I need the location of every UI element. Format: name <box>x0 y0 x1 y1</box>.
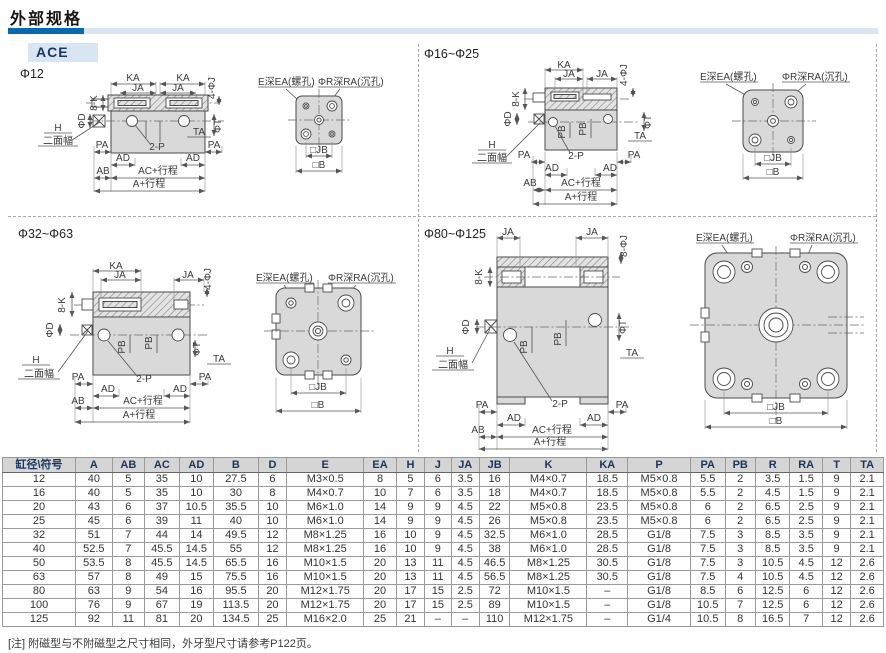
spec-cell: 4.5 <box>451 543 479 557</box>
spec-cell: 16 <box>364 529 396 543</box>
spec-cell: 30.5 <box>587 557 628 571</box>
spec-cell: 1.5 <box>790 487 822 501</box>
dim-label-ad: AD <box>116 153 130 164</box>
dim-label-ta: TA <box>626 348 638 359</box>
spec-cell: 32.5 <box>479 529 509 543</box>
column-header: K <box>510 458 587 473</box>
spec-cell: 7 <box>112 529 144 543</box>
title-accent-bar-dark <box>8 28 84 34</box>
dim-label-pb: PB <box>578 122 589 136</box>
spec-cell: 12 <box>822 599 850 613</box>
spec-cell: – <box>451 613 479 627</box>
dim-label-ad: AD <box>507 413 521 424</box>
spec-cell: 12.5 <box>755 599 790 613</box>
column-header: KA <box>587 458 628 473</box>
dim-label-a-stroke: A+行程 <box>123 408 156 421</box>
spec-cell: 16 <box>179 585 214 599</box>
label-counterbore: ΦR深RA(沉孔) <box>318 75 384 88</box>
dim-label-2p: 2-P <box>149 142 165 153</box>
dim-label-8k: 8-K <box>474 269 485 285</box>
spec-cell: 12 <box>822 613 850 627</box>
spec-cell: – <box>425 613 451 627</box>
spec-cell: 5 <box>112 487 144 501</box>
spec-cell: 23.5 <box>587 501 628 515</box>
row-bore-size: 12 <box>3 473 76 487</box>
dim-label-phit: ΦT <box>618 320 629 334</box>
spec-cell: 37 <box>145 501 180 515</box>
label-thread-hole: E深EA(螺孔) <box>696 232 753 244</box>
dim-label-ja: JA <box>586 227 598 238</box>
spec-cell: 2.5 <box>790 515 822 529</box>
row-bore-size: 100 <box>3 599 76 613</box>
spec-cell: 40 <box>76 487 113 501</box>
spec-cell: M5×0.8 <box>510 515 587 529</box>
spec-cell: 1.5 <box>790 473 822 487</box>
spec-cell: 38 <box>479 543 509 557</box>
dim-label-8k: 8-K <box>89 95 100 111</box>
spec-cell: 6 <box>258 473 286 487</box>
spec-cell: M10×1.5 <box>510 599 587 613</box>
spec-cell: 21 <box>396 613 424 627</box>
dim-label-pa: PA <box>476 400 489 411</box>
spec-cell: – <box>587 613 628 627</box>
title-accent-bar-light <box>84 28 878 34</box>
spec-cell: M5×0.8 <box>628 501 691 515</box>
label-counterbore: ΦR深RA(沉孔) <box>790 231 856 244</box>
spec-cell: 2 <box>725 487 755 501</box>
dim-label-pa: PA <box>208 140 221 151</box>
column-header: JB <box>479 458 509 473</box>
spec-cell: 23.5 <box>587 515 628 529</box>
spec-cell: M10×1.5 <box>287 571 364 585</box>
dim-label-ta: TA <box>193 127 205 138</box>
spec-cell: M10×1.5 <box>287 557 364 571</box>
spec-cell: 20 <box>364 599 396 613</box>
spec-cell: 6 <box>112 501 144 515</box>
spec-cell: 16 <box>364 543 396 557</box>
spec-cell: M5×0.8 <box>628 473 691 487</box>
table-row: 32517441449.512M8×1.25161094.532.5M6×1.0… <box>3 529 884 543</box>
spec-cell: 2.5 <box>451 599 479 613</box>
spec-cell: – <box>587 599 628 613</box>
dim-label-4phij: 4-ΦJ <box>207 77 218 99</box>
table-row: 5053.5845.514.565.516M10×1.52013114.546.… <box>3 557 884 571</box>
spec-cell: 8 <box>112 571 144 585</box>
table-row: 4052.5745.514.55512M8×1.25161094.538M6×1… <box>3 543 884 557</box>
spec-cell: 14.5 <box>179 543 214 557</box>
spec-cell: 43 <box>76 501 113 515</box>
spec-cell: 9 <box>425 543 451 557</box>
spec-cell: 20 <box>364 585 396 599</box>
spec-cell: 2.6 <box>851 599 884 613</box>
row-bore-size: 80 <box>3 585 76 599</box>
spec-cell: 10 <box>396 529 424 543</box>
spec-cell: 6 <box>691 515 726 529</box>
spec-cell: 6 <box>425 487 451 501</box>
spec-cell: 51 <box>76 529 113 543</box>
dim-label-b: □B <box>312 400 325 411</box>
spec-cell: 6 <box>691 501 726 515</box>
spec-cell: 11 <box>179 515 214 529</box>
dim-label-ja: JA <box>502 227 514 238</box>
spec-cell: 20 <box>179 613 214 627</box>
spec-cell: 6.5 <box>755 515 790 529</box>
column-header: PA <box>691 458 726 473</box>
spec-cell: 9 <box>425 529 451 543</box>
dim-label-pb: PB <box>144 336 155 350</box>
spec-cell: 7.5 <box>691 543 726 557</box>
spec-cell: 20 <box>258 599 286 613</box>
dim-label-flats: 二面幅 <box>43 134 73 147</box>
table-row: 2545639114010M6×1.014994.526M5×0.823.5M5… <box>3 515 884 529</box>
row-bore-size: 25 <box>3 515 76 529</box>
row-bore-size: 125 <box>3 613 76 627</box>
spec-cell: 16 <box>479 473 509 487</box>
dim-label-ad: AD <box>545 163 559 174</box>
table-row: 63578491575.516M10×1.52013114.556.5M8×1.… <box>3 571 884 585</box>
spec-cell: 46.5 <box>479 557 509 571</box>
spec-cell: 57 <box>76 571 113 585</box>
spec-cell: 30.5 <box>587 571 628 585</box>
column-header: P <box>628 458 691 473</box>
spec-cell: 14 <box>179 529 214 543</box>
dim-label-flats: 二面幅 <box>438 358 468 371</box>
spec-cell: – <box>587 585 628 599</box>
spec-cell: 14 <box>364 515 396 529</box>
spec-cell: 49 <box>145 571 180 585</box>
spec-cell: 110 <box>479 613 509 627</box>
dim-label-pa: PA <box>518 150 531 161</box>
spec-cell: 12.5 <box>755 585 790 599</box>
label-counterbore: ΦR深RA(沉孔) <box>328 271 394 284</box>
spec-cell: 17 <box>396 599 424 613</box>
table-row: 80639541695.520M12×1.752017152.572M10×1.… <box>3 585 884 599</box>
spec-table-body: 12405351027.56M3×0.58563.516M4×0.718.5M5… <box>3 473 884 627</box>
drawing-title: Φ80~Φ125 <box>424 227 486 241</box>
spec-cell: M8×1.25 <box>510 571 587 585</box>
spec-cell: 9 <box>396 515 424 529</box>
spec-cell: 3.5 <box>755 473 790 487</box>
row-bore-size: 16 <box>3 487 76 501</box>
drawing-phi80-125: Φ80~Φ125 PB PB JA JA 8-ΦJ 8-K ΦD ΦT <box>424 222 878 452</box>
spec-cell: 35 <box>145 487 180 501</box>
spec-cell: 40 <box>214 515 259 529</box>
spec-cell: 65.5 <box>214 557 259 571</box>
dim-label-ad: AD <box>587 413 601 424</box>
spec-cell: 4.5 <box>451 571 479 585</box>
spec-cell: M10×1.5 <box>510 585 587 599</box>
spec-cell: 9 <box>822 529 850 543</box>
column-header: A <box>76 458 113 473</box>
row-bore-size: 63 <box>3 571 76 585</box>
spec-cell: 55 <box>214 543 259 557</box>
dim-label-a-stroke: A+行程 <box>534 435 567 448</box>
spec-cell: 53.5 <box>76 557 113 571</box>
spec-cell: 13 <box>396 557 424 571</box>
spec-cell: 4.5 <box>451 515 479 529</box>
spec-cell: 15 <box>179 571 214 585</box>
column-header: AB <box>112 458 144 473</box>
spec-cell: 6 <box>790 599 822 613</box>
spec-cell: 10 <box>396 543 424 557</box>
spec-cell: 7 <box>790 613 822 627</box>
spec-cell: 35 <box>145 473 180 487</box>
table-row: 12405351027.56M3×0.58563.516M4×0.718.5M5… <box>3 473 884 487</box>
end-view: E深EA(螺孔) ΦR深RA(沉孔) □JB □B <box>256 271 396 413</box>
spec-cell: 45.5 <box>145 557 180 571</box>
spec-cell: 76 <box>76 599 113 613</box>
quadrant-separator-horizontal <box>8 216 876 217</box>
spec-cell: 7 <box>112 543 144 557</box>
column-header: J <box>425 458 451 473</box>
spec-cell: G1/8 <box>628 543 691 557</box>
column-header: RA <box>790 458 822 473</box>
drawing-phi12: Φ12 KA KA JA JA 8-K 4-ΦJ ΦD ΦT <box>8 58 412 216</box>
spec-cell: 40 <box>76 473 113 487</box>
spec-cell: 8 <box>725 613 755 627</box>
spec-cell: M3×0.5 <box>287 473 364 487</box>
side-view: PB PB JA JA 8-ΦJ 8-K ΦD ΦT TA H 二面幅 PA P… <box>432 227 644 450</box>
dim-label-b: □B <box>313 160 326 171</box>
spec-cell: 12 <box>822 585 850 599</box>
dim-label-ac-stroke: AC+行程 <box>138 164 178 177</box>
spec-cell: 67 <box>145 599 180 613</box>
spec-cell: 2 <box>725 473 755 487</box>
dim-label-h: H <box>54 123 61 134</box>
dim-label-pa: PA <box>199 372 212 383</box>
spec-cell: 2.5 <box>790 501 822 515</box>
spec-cell: 9 <box>822 515 850 529</box>
spec-cell: 3.5 <box>790 543 822 557</box>
spec-cell: M4×0.7 <box>510 473 587 487</box>
spec-cell: 9 <box>112 599 144 613</box>
spec-cell: 56.5 <box>479 571 509 585</box>
dim-label-ad: AD <box>186 153 200 164</box>
spec-cell: 5.5 <box>691 487 726 501</box>
spec-cell: 9 <box>425 515 451 529</box>
spec-cell: 4 <box>725 571 755 585</box>
dim-label-jb: □JB <box>309 382 327 393</box>
spec-cell: 6 <box>425 473 451 487</box>
spec-cell: 4.5 <box>451 501 479 515</box>
spec-cell: 2.1 <box>851 473 884 487</box>
spec-cell: 2.5 <box>451 585 479 599</box>
spec-cell: 2.1 <box>851 529 884 543</box>
dim-label-phid: ΦD <box>503 111 514 126</box>
spec-cell: 9 <box>822 501 850 515</box>
spec-cell: 4.5 <box>790 571 822 585</box>
dim-label-phit: ΦT <box>192 342 203 356</box>
column-header: TA <box>851 458 884 473</box>
spec-cell: 10.5 <box>179 501 214 515</box>
spec-cell: 2.1 <box>851 543 884 557</box>
dim-label-ja: JA <box>182 270 194 281</box>
spec-cell: 28.5 <box>587 543 628 557</box>
label-thread-hole: E深EA(螺孔) <box>256 272 313 284</box>
spec-table-header-row: 缸径\符号AABACADBDEEAHJJAJBKKAPPAPBRRATTA <box>3 458 884 473</box>
dim-label-ac-stroke: AC+行程 <box>532 423 572 436</box>
dim-label-phid: ΦD <box>45 322 56 337</box>
table-row: 12592118120134.525M16×2.02521––110M12×1.… <box>3 613 884 627</box>
spec-cell: 10 <box>258 501 286 515</box>
spec-cell: 4.5 <box>790 557 822 571</box>
column-header: B <box>214 458 259 473</box>
dim-label-ta: TA <box>634 131 646 142</box>
spec-cell: G1/8 <box>628 571 691 585</box>
dim-label-2p: 2-P <box>568 151 584 162</box>
spec-cell: 10 <box>258 515 286 529</box>
dim-label-8k: 8-K <box>57 297 68 313</box>
spec-cell: 16 <box>258 571 286 585</box>
spec-cell: 12 <box>258 529 286 543</box>
spec-cell: 14.5 <box>179 557 214 571</box>
spec-cell: M6×1.0 <box>510 543 587 557</box>
spec-cell: 54 <box>145 585 180 599</box>
dim-label-ja: JA <box>563 69 575 80</box>
spec-cell: 2.6 <box>851 571 884 585</box>
drawing-phi16-25: Φ16~Φ25 PB PB KA JA JA 4-ΦJ 8-K ΦD Φ <box>424 42 878 215</box>
label-thread-hole: E深EA(螺孔) <box>700 71 757 83</box>
spec-cell: 7.5 <box>691 529 726 543</box>
spec-cell: M5×0.8 <box>510 501 587 515</box>
spec-cell: 63 <box>76 585 113 599</box>
spec-cell: 75.5 <box>214 571 259 585</box>
spec-cell: 5 <box>396 473 424 487</box>
spec-cell: 6.5 <box>755 501 790 515</box>
spec-cell: 26 <box>479 515 509 529</box>
spec-cell: G1/4 <box>628 613 691 627</box>
spec-cell: 20 <box>258 585 286 599</box>
spec-cell: 49.5 <box>214 529 259 543</box>
table-row: 204363710.535.510M6×1.014994.522M5×0.823… <box>3 501 884 515</box>
column-header: JA <box>451 458 479 473</box>
dim-label-ta: TA <box>213 354 225 365</box>
dim-label-pb: PB <box>117 340 128 354</box>
spec-cell: M5×0.8 <box>628 515 691 529</box>
spec-cell: 81 <box>145 613 180 627</box>
column-header: AD <box>179 458 214 473</box>
row-bore-size: 20 <box>3 501 76 515</box>
dim-label-2p: 2-P <box>552 399 568 410</box>
side-view: PB PB KA JA JA 4-ΦJ 8-K ΦD ΦT TA H 二面幅 P… <box>472 60 654 205</box>
row-bore-size: 32 <box>3 529 76 543</box>
spec-cell: 12 <box>822 571 850 585</box>
side-view: PB PB KA JA JA 4-ΦJ 8-K ΦD ΦT TA H 二面幅 P… <box>18 261 231 423</box>
spec-cell: 72 <box>479 585 509 599</box>
spec-cell: 10.5 <box>755 557 790 571</box>
spec-cell: 89 <box>479 599 509 613</box>
spec-cell: 8.5 <box>755 543 790 557</box>
dim-label-ab: AB <box>523 178 537 189</box>
spec-cell: M12×1.75 <box>287 585 364 599</box>
spec-cell: 3 <box>725 557 755 571</box>
column-header: R <box>755 458 790 473</box>
spec-cell: 113.5 <box>214 599 259 613</box>
footnote: [注] 附磁型与不附磁型之尺寸相同，外牙型尺寸请参考P122页。 <box>8 635 318 651</box>
drawing-phi32-63: Φ32~Φ63 PB PB KA JA JA 4-ΦJ 8-K ΦD Φ <box>8 222 412 448</box>
dim-label-b: □B <box>770 416 783 427</box>
spec-cell: G1/8 <box>628 585 691 599</box>
spec-cell: 30 <box>214 487 259 501</box>
spec-cell: 7 <box>396 487 424 501</box>
dim-label-ab: AB <box>96 166 110 177</box>
spec-cell: 2.6 <box>851 613 884 627</box>
dim-label-a-stroke: A+行程 <box>133 177 166 190</box>
spec-cell: M8×1.25 <box>287 543 364 557</box>
spec-cell: 9 <box>425 501 451 515</box>
spec-cell: 16.5 <box>755 613 790 627</box>
dim-label-ab: AB <box>471 425 485 436</box>
dim-label-ja: JA <box>596 69 608 80</box>
spec-cell: 10.5 <box>755 571 790 585</box>
end-view: E深EA(螺孔) ΦR深RA(沉孔) □JB □B <box>258 75 384 173</box>
spec-cell: 3.5 <box>790 529 822 543</box>
spec-cell: 3.5 <box>451 473 479 487</box>
spec-cell: 2.1 <box>851 487 884 501</box>
dim-label-ac-stroke: AC+行程 <box>123 394 163 407</box>
dim-label-jb: □JB <box>764 153 782 164</box>
spec-cell: 5 <box>112 473 144 487</box>
dim-label-phid: ΦD <box>461 319 472 334</box>
spec-cell: 25 <box>258 613 286 627</box>
spec-cell: 9 <box>396 501 424 515</box>
dim-label-ab: AB <box>71 396 85 407</box>
spec-cell: 95.5 <box>214 585 259 599</box>
spec-cell: M12×1.75 <box>287 599 364 613</box>
dim-label-pa: PA <box>96 140 109 151</box>
column-header: 缸径\符号 <box>3 458 76 473</box>
spec-cell: 2 <box>725 501 755 515</box>
spec-cell: 44 <box>145 529 180 543</box>
column-header: EA <box>364 458 396 473</box>
row-bore-size: 40 <box>3 543 76 557</box>
dim-label-ad: AD <box>101 384 115 395</box>
spec-cell: 18.5 <box>587 473 628 487</box>
spec-cell: M6×1.0 <box>287 515 364 529</box>
spec-cell: 2.1 <box>851 501 884 515</box>
spec-cell: 14 <box>364 501 396 515</box>
spec-cell: 4.5 <box>755 487 790 501</box>
dim-label-ja: JA <box>114 270 126 281</box>
spec-cell: 9 <box>822 473 850 487</box>
dim-label-flats: 二面幅 <box>24 367 54 380</box>
spec-cell: M8×1.25 <box>287 529 364 543</box>
spec-cell: G1/8 <box>628 529 691 543</box>
spec-cell: 8 <box>364 473 396 487</box>
spec-cell: 9 <box>822 487 850 501</box>
spec-cell: 15 <box>425 585 451 599</box>
spec-cell: 12 <box>822 557 850 571</box>
quadrant-separator-vertical <box>418 44 419 452</box>
spec-cell: 45.5 <box>145 543 180 557</box>
spec-cell: 10 <box>179 473 214 487</box>
spec-cell: 17 <box>396 585 424 599</box>
dim-label-flats: 二面幅 <box>477 151 507 164</box>
dim-label-ja: JA <box>172 83 184 94</box>
label-thread-hole: E深EA(螺孔) <box>258 76 315 88</box>
spec-cell: 18.5 <box>587 487 628 501</box>
dim-label-2p: 2-P <box>136 374 152 385</box>
column-header: H <box>396 458 424 473</box>
column-header: E <box>287 458 364 473</box>
dim-label-pa: PA <box>616 400 629 411</box>
spec-cell: 2 <box>725 515 755 529</box>
spec-cell: 16 <box>258 557 286 571</box>
spec-cell: 35.5 <box>214 501 259 515</box>
spec-cell: 10 <box>179 487 214 501</box>
column-header: D <box>258 458 286 473</box>
spec-cell: G1/8 <box>628 557 691 571</box>
